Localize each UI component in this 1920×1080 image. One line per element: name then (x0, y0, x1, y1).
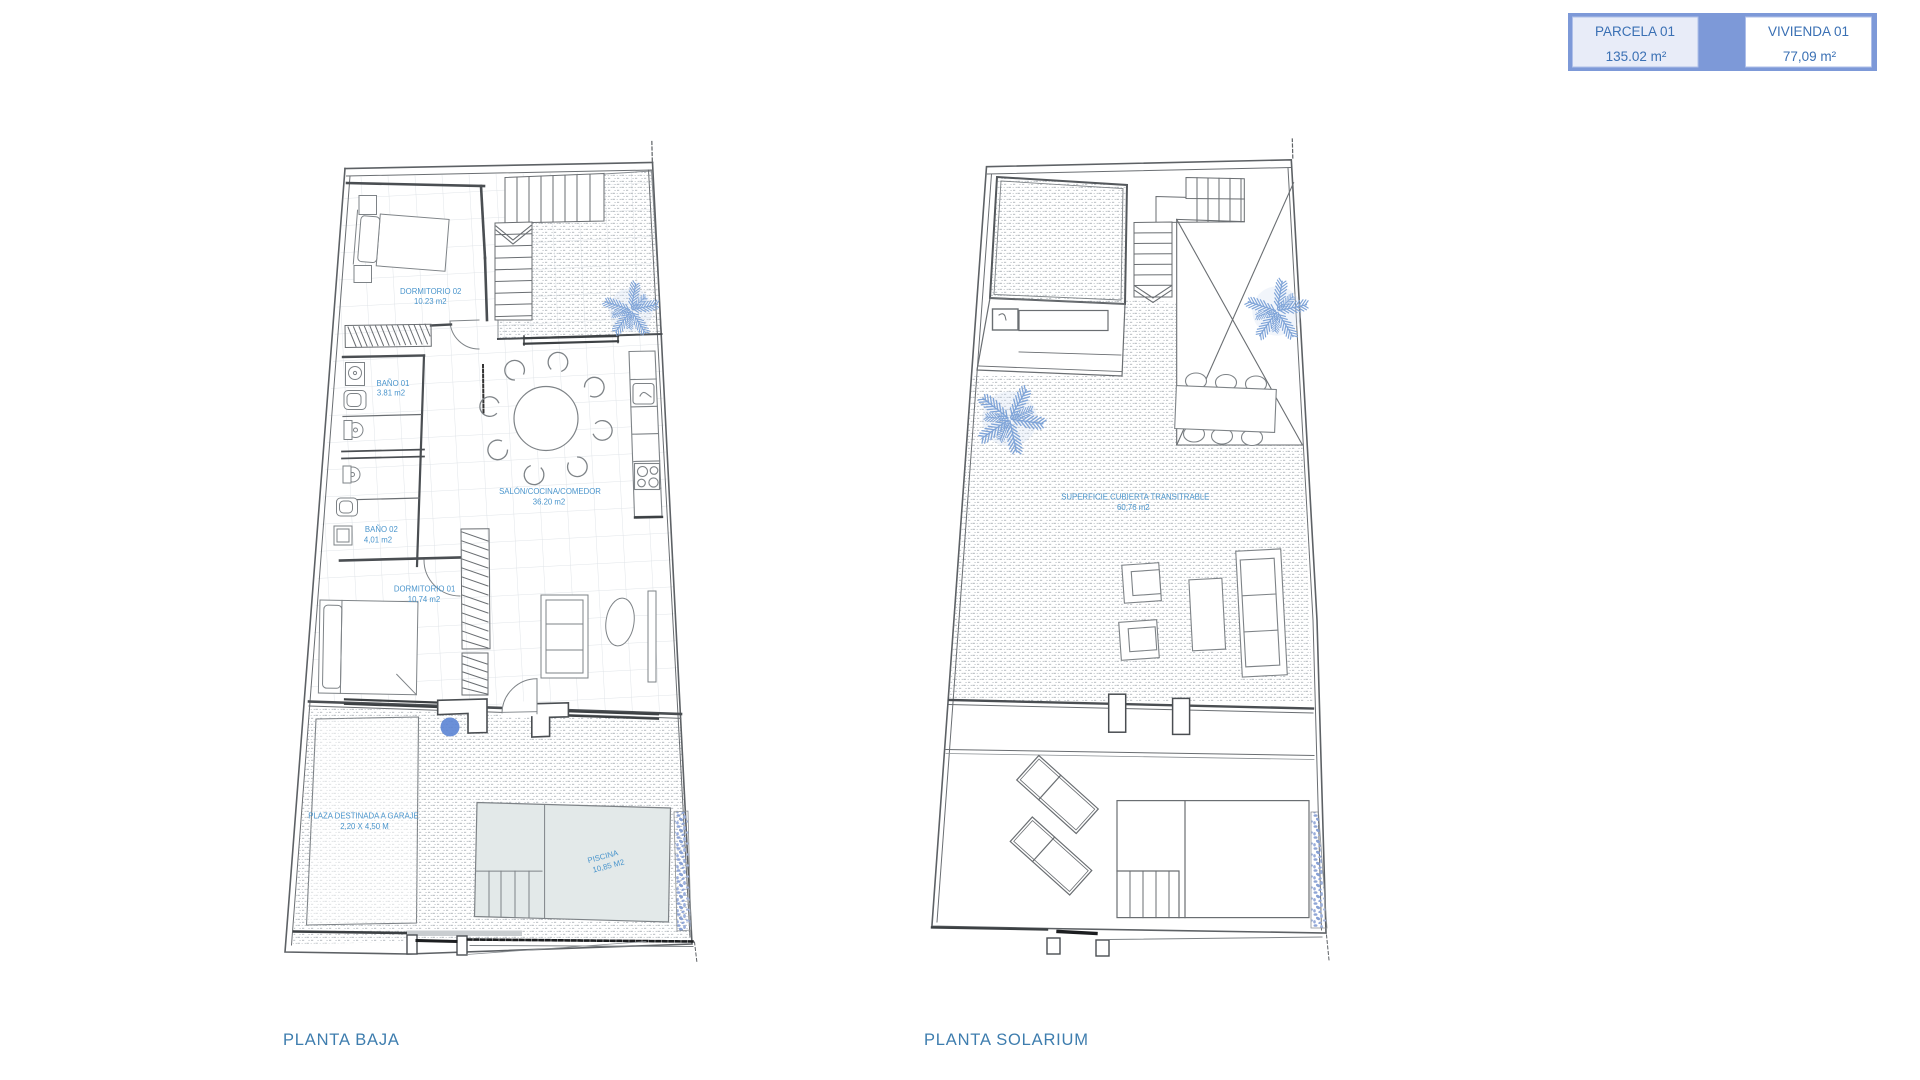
svg-text:10.23 m2: 10.23 m2 (414, 297, 447, 306)
svg-text:60,76 m2: 60,76 m2 (1117, 503, 1150, 512)
svg-text:PLAZA DESTINADA A GARAJE: PLAZA DESTINADA A GARAJE (308, 812, 419, 821)
svg-text:SALÓN/COCINA/COMEDOR: SALÓN/COCINA/COMEDOR (499, 487, 601, 496)
svg-text:BAÑO 01: BAÑO 01 (377, 379, 410, 388)
svg-text:PLANTA SOLARIUM: PLANTA SOLARIUM (924, 1031, 1089, 1049)
svg-text:10,74 m2: 10,74 m2 (408, 595, 441, 604)
svg-text:DORMITORIO 02: DORMITORIO 02 (400, 287, 461, 296)
svg-text:4,01 m2: 4,01 m2 (364, 536, 392, 545)
svg-text:PARCELA 01: PARCELA 01 (1595, 24, 1675, 39)
svg-text:SUPERFICIE CUBIERTA TRANSITRAB: SUPERFICIE CUBIERTA TRANSITRABLE (1061, 493, 1209, 502)
svg-text:2,20 X 4,50 M: 2,20 X 4,50 M (340, 822, 389, 831)
svg-text:BAÑO 02: BAÑO 02 (365, 525, 398, 534)
svg-text:VIVIENDA 01: VIVIENDA 01 (1768, 24, 1849, 39)
svg-text:DORMITORIO 01: DORMITORIO 01 (394, 585, 455, 594)
svg-text:3.81 m2: 3.81 m2 (377, 389, 405, 398)
svg-text:135.02 m²: 135.02 m² (1606, 49, 1667, 64)
svg-text:PLANTA BAJA: PLANTA BAJA (283, 1031, 400, 1049)
svg-text:36.20 m2: 36.20 m2 (533, 498, 566, 507)
svg-text:77,09 m²: 77,09 m² (1783, 49, 1837, 64)
